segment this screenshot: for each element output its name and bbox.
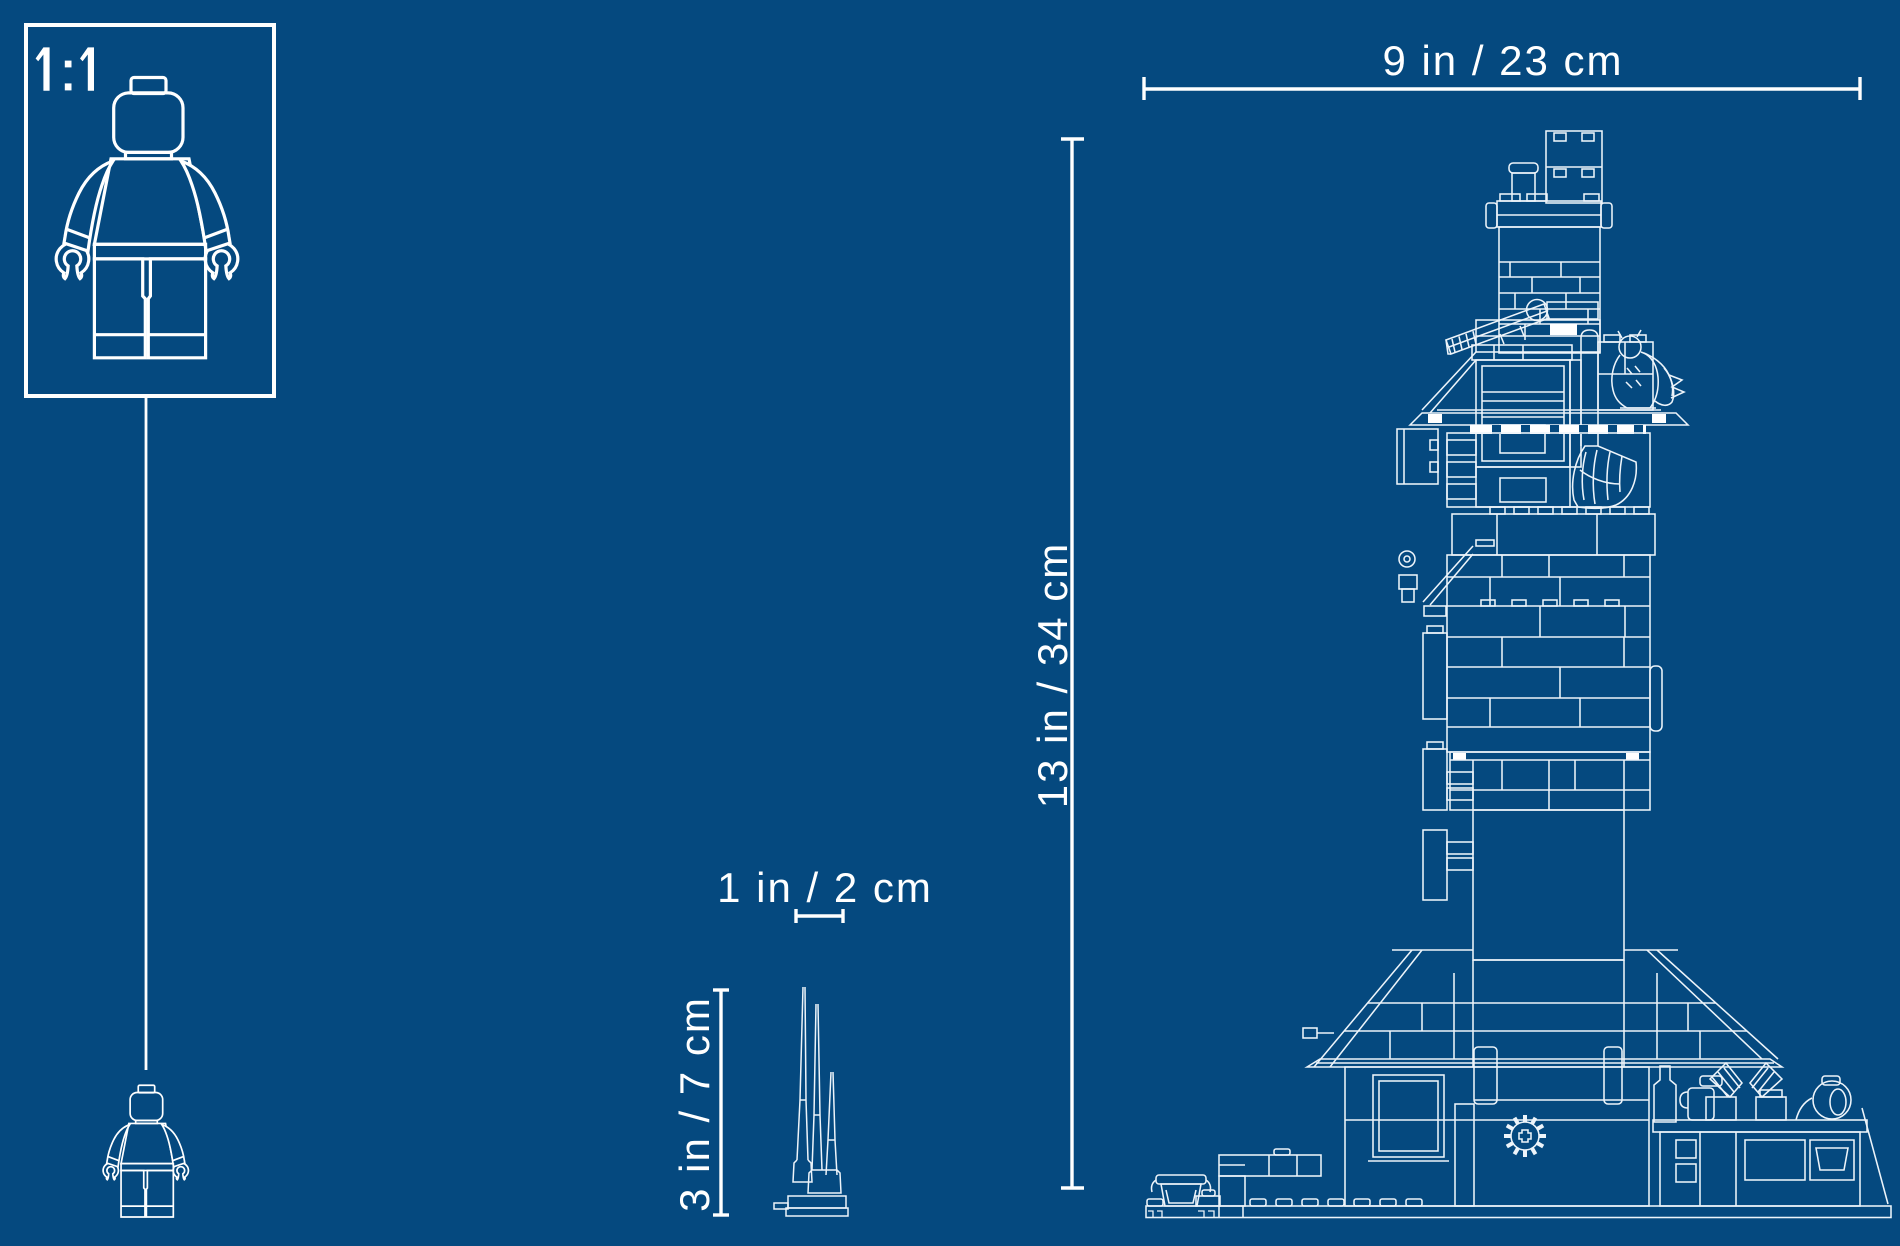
svg-text:13 in / 34 cm: 13 in / 34 cm xyxy=(1029,542,1076,808)
svg-text:1 in / 2 cm: 1 in / 2 cm xyxy=(717,864,933,911)
svg-text:9 in / 23 cm: 9 in / 23 cm xyxy=(1382,37,1623,84)
svg-text:3 in / 7 cm: 3 in / 7 cm xyxy=(671,996,718,1212)
